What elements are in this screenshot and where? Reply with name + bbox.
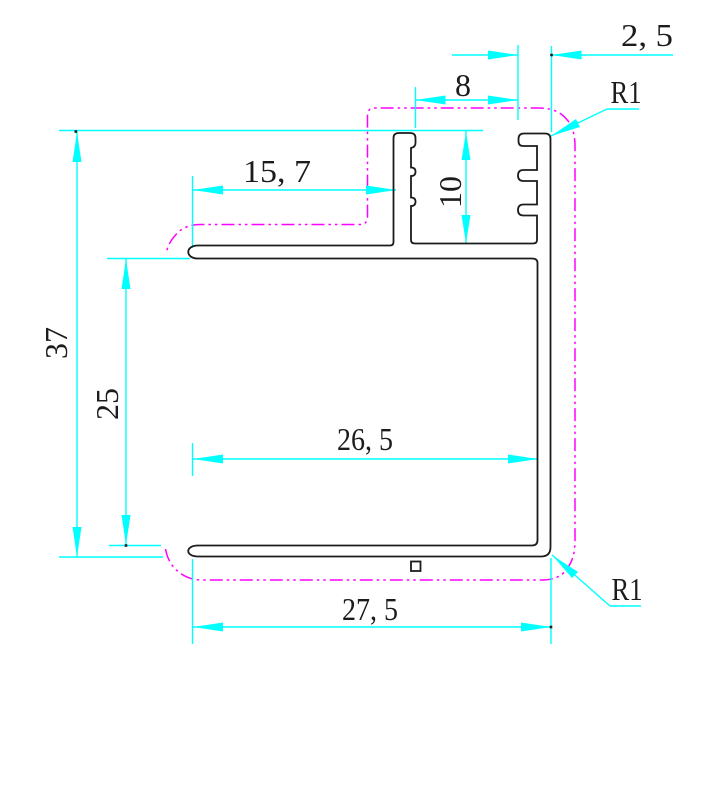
arrow-down-icon [73, 527, 82, 557]
dim-label-inner-height: 25 [89, 388, 125, 420]
arrow-left-icon [193, 186, 223, 195]
dim-label-channel-depth: 10 [432, 176, 468, 208]
arrow-up-icon [122, 259, 131, 289]
arrow-left-icon [416, 96, 446, 105]
dim-label-inner-width: 26, 5 [337, 421, 393, 457]
defpoint-dot [75, 130, 78, 133]
arrow-right-icon [508, 455, 538, 464]
arrow-left-icon [193, 455, 223, 464]
dimension-inner-height: 25 [89, 259, 190, 546]
arrow-up-icon [73, 132, 82, 162]
phantom-path [166, 108, 576, 580]
profile-drawing: 37 25 15, 7 10 8 2, 5 [0, 0, 724, 795]
arrow-left-icon [193, 623, 223, 632]
arrow-down-icon [122, 515, 131, 545]
defpoint-dot [125, 544, 128, 547]
dimension-overall-height: 37 [38, 131, 483, 558]
dim-label-radius-bottom: R1 [612, 571, 643, 607]
dim-label-flange-length: 15, 7 [243, 153, 311, 189]
arrow-down-icon [462, 215, 471, 243]
arrow-icon [552, 555, 578, 578]
arrow-right-icon [366, 186, 396, 195]
arrow-right-icon [488, 96, 518, 105]
defpoint-dot [550, 626, 553, 629]
dimension-channel-depth: 10 [432, 131, 471, 243]
dimension-inner-width: 26, 5 [193, 421, 539, 476]
radius-callout-bottom: R1 [552, 555, 643, 607]
dim-label-top-wall: 2, 5 [621, 17, 673, 53]
dim-label-channel-opening: 8 [455, 67, 471, 103]
arrow-right-icon [521, 623, 551, 632]
dimension-overall-width: 27, 5 [193, 558, 552, 644]
profile-outline [188, 133, 550, 571]
dimension-channel-opening: 8 [416, 45, 519, 128]
radius-callout-top: R1 [551, 74, 642, 136]
definition-points [75, 54, 553, 629]
arrow-right-icon [488, 51, 518, 60]
arrow-up-icon [462, 132, 471, 160]
dimension-flange-length: 15, 7 [193, 153, 397, 248]
profile-path [188, 133, 550, 557]
defpoint-dot [550, 54, 553, 57]
dim-label-radius-top: R1 [611, 74, 642, 110]
weld-marker-square [411, 562, 421, 572]
arrow-icon [551, 119, 580, 136]
phantom-outline [166, 108, 576, 580]
technical-drawing-canvas: 37 25 15, 7 10 8 2, 5 [0, 0, 724, 795]
arrow-left-icon [552, 51, 582, 60]
dim-label-overall-width: 27, 5 [342, 591, 398, 627]
dim-label-overall-height: 37 [38, 327, 74, 359]
